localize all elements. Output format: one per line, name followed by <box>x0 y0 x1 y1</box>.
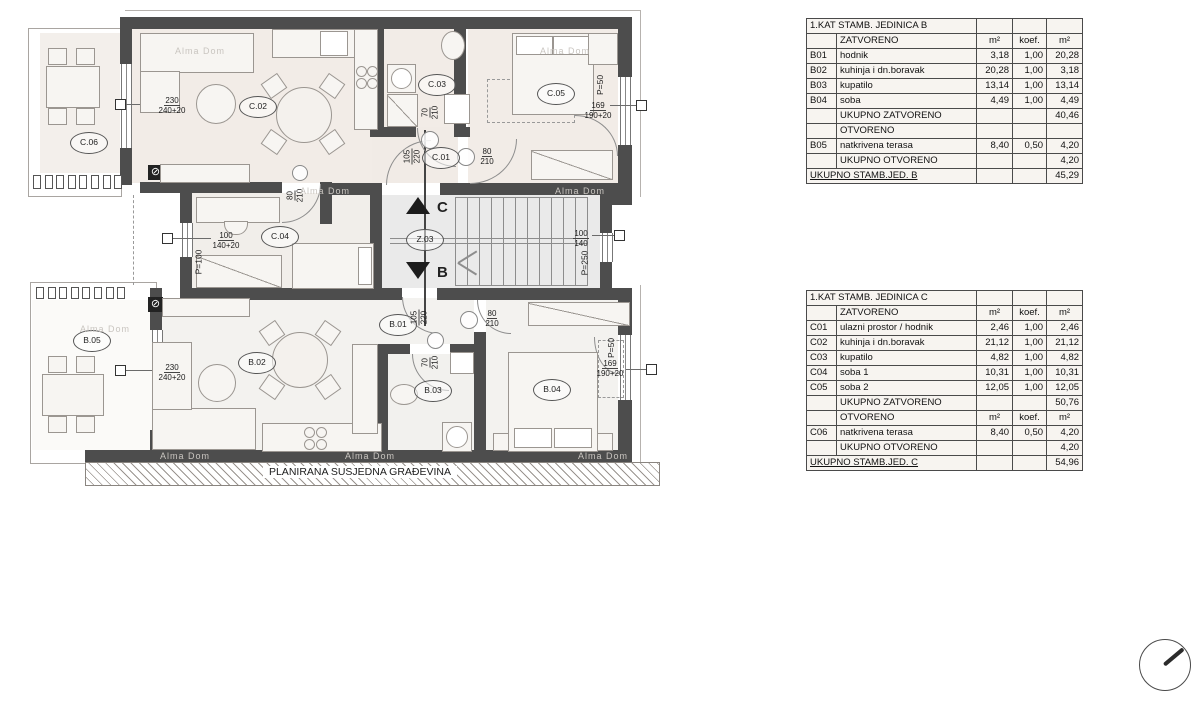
watermark: Alma Dom <box>160 451 210 461</box>
chair <box>76 48 95 65</box>
dim-marker <box>162 233 173 244</box>
chair <box>48 108 67 125</box>
table-cell: 21,12 <box>1047 336 1083 351</box>
table-cell: 21,12 <box>977 336 1013 351</box>
dim-top: 70 <box>421 357 431 368</box>
table-cell <box>977 109 1013 124</box>
stair-tread <box>539 197 540 286</box>
room-label-C.06: C.06 <box>70 132 108 154</box>
table-cell: m² <box>1047 306 1083 321</box>
table-cell <box>1013 456 1047 471</box>
table-cell: natkrivena terasa <box>837 139 977 154</box>
room-label-B.03: B.03 <box>414 380 452 402</box>
chair <box>76 108 95 125</box>
eaves-line <box>640 285 641 462</box>
table-cell <box>1013 154 1047 169</box>
table-row: C05soba 212,051,0012,05 <box>807 381 1083 396</box>
table-row: OTVORENOm²koef.m² <box>807 411 1083 426</box>
table-cell: 45,29 <box>1047 169 1083 184</box>
room-label-C.03: C.03 <box>418 74 456 96</box>
dim-bottom: 190+20 <box>581 111 615 120</box>
sofa <box>152 408 256 450</box>
dim-leader <box>626 369 646 370</box>
table-cell: 1,00 <box>1013 336 1047 351</box>
table-cell: 4,20 <box>1047 426 1083 441</box>
table-cell <box>807 441 837 456</box>
table-cell: soba 1 <box>837 366 977 381</box>
desk <box>196 197 280 223</box>
dim-label: 70210 <box>421 346 440 380</box>
dim-marker <box>115 99 126 110</box>
table-cell: C03 <box>807 351 837 366</box>
stove-burner <box>304 427 315 438</box>
table-cell: 1.KAT STAMB. JEDINICA B <box>807 19 977 34</box>
room-label-C.05: C.05 <box>537 83 575 105</box>
table-cell: 8,40 <box>977 426 1013 441</box>
stove-burner <box>356 66 367 77</box>
tv-sideboard <box>160 164 250 183</box>
table-cell: 1,00 <box>1013 381 1047 396</box>
parapet-post <box>33 175 41 189</box>
pillow <box>554 428 592 448</box>
table-cell <box>1013 396 1047 411</box>
table-cell: kupatilo <box>837 79 977 94</box>
table-cell <box>807 306 837 321</box>
dim-top: 80 <box>286 190 296 201</box>
watermark: Alma Dom <box>555 186 605 196</box>
table-cell: ZATVORENO <box>837 34 977 49</box>
tv-sideboard <box>162 298 250 317</box>
wall <box>454 127 470 137</box>
table-cell: soba <box>837 94 977 109</box>
table-cell: 4,20 <box>1047 441 1083 456</box>
floorplan-sheet: { "plan": { "watermark": "Alma Dom", "ne… <box>0 0 1200 709</box>
terrace-table <box>46 66 100 108</box>
parapet-post <box>117 287 125 299</box>
dim-bottom: 210 <box>431 346 440 380</box>
area-table-unit-b: 1.KAT STAMB. JEDINICA BZATVORENOm²koef.m… <box>806 18 1083 184</box>
parapet-post <box>103 175 111 189</box>
dim-top: 100 <box>573 229 588 239</box>
dim-label: 100140+20 <box>209 231 243 250</box>
terrace-table <box>42 374 104 416</box>
parapet-post <box>56 175 64 189</box>
parapet-post <box>91 175 99 189</box>
door-pivot-icon: ⊘ <box>148 297 163 312</box>
kitchen-sink <box>320 31 348 56</box>
chair <box>48 356 67 373</box>
table-row: B02kuhinja i dn.boravak20,281,003,18 <box>807 64 1083 79</box>
projection-dashed-line <box>133 195 134 285</box>
section-letter-B: B <box>437 264 448 281</box>
table-cell <box>807 396 837 411</box>
table-cell: UKUPNO ZATVORENO <box>837 396 977 411</box>
table-cell: m² <box>977 306 1013 321</box>
table-cell <box>807 411 837 426</box>
wardrobe <box>196 255 282 288</box>
wall <box>437 288 632 300</box>
stair-tread <box>467 197 468 286</box>
table-cell <box>807 154 837 169</box>
table-title-row: 1.KAT STAMB. JEDINICA B <box>807 19 1083 34</box>
wall <box>120 29 132 64</box>
watermark: Alma Dom <box>578 451 628 461</box>
dim-top: 169 <box>590 101 605 111</box>
table-title-row: 1.KAT STAMB. JEDINICA C <box>807 291 1083 306</box>
stove-burner <box>316 439 327 450</box>
table-row: C02kuhinja i dn.boravak21,121,0021,12 <box>807 336 1083 351</box>
parapet-post <box>59 287 67 299</box>
wall <box>120 17 632 29</box>
table-cell <box>1013 441 1047 456</box>
washing-machine-drum <box>446 426 468 448</box>
table-cell <box>1047 124 1083 139</box>
wall <box>140 182 282 193</box>
table-cell <box>1013 169 1047 184</box>
window <box>602 233 613 262</box>
parapet-height-label: P=100 <box>193 250 203 275</box>
wall <box>180 193 192 223</box>
table-cell: 4,49 <box>1047 94 1083 109</box>
room-label-C.04: C.04 <box>261 226 299 248</box>
dim-bottom: 210 <box>475 319 509 328</box>
table-cell: soba 2 <box>837 381 977 396</box>
table-cell: 10,31 <box>1047 366 1083 381</box>
table-cell <box>1013 109 1047 124</box>
table-cell: OTVORENO <box>837 124 977 139</box>
table-row: C01ulazni prostor / hodnik2,461,002,46 <box>807 321 1083 336</box>
dim-label: 105220 <box>410 301 429 335</box>
table-row: UKUPNO OTVORENO4,20 <box>807 441 1083 456</box>
dim-bottom: 240+20 <box>155 373 189 382</box>
wall <box>618 400 632 452</box>
table-cell: 0,50 <box>1013 426 1047 441</box>
table-cell: 8,40 <box>977 139 1013 154</box>
dim-marker <box>646 364 657 375</box>
toilet <box>441 31 465 60</box>
table-cell: 1,00 <box>1013 321 1047 336</box>
dim-bottom: 190+20 <box>593 369 627 378</box>
table-cell: m² <box>1047 34 1083 49</box>
dim-label: 70210 <box>421 96 440 130</box>
wall <box>600 262 612 288</box>
table-cell: UKUPNO ZATVORENO <box>837 109 977 124</box>
stove-burner <box>367 78 378 89</box>
table-cell: C01 <box>807 321 837 336</box>
wall <box>618 17 632 77</box>
room-label-B.02: B.02 <box>238 352 276 374</box>
table-total-row: UKUPNO STAMB.JED. C54,96 <box>807 456 1083 471</box>
room-label-C.01: C.01 <box>422 147 460 169</box>
table-cell: B02 <box>807 64 837 79</box>
section-letter-C: C <box>437 199 448 216</box>
table-cell: ZATVORENO <box>837 306 977 321</box>
table-row: C04soba 110,311,0010,31 <box>807 366 1083 381</box>
table-cell <box>807 124 837 139</box>
table-cell: hodnik <box>837 49 977 64</box>
table-row: B01hodnik3,181,0020,28 <box>807 49 1083 64</box>
wall <box>180 257 192 290</box>
dim-marker <box>115 365 126 376</box>
dim-bottom: 220 <box>420 301 429 335</box>
stairs <box>455 197 587 198</box>
table-cell: B01 <box>807 49 837 64</box>
watermark: Alma Dom <box>540 46 590 56</box>
dim-bottom: 210 <box>431 96 440 130</box>
table-cell <box>977 396 1013 411</box>
table-cell: 4,20 <box>1047 154 1083 169</box>
coffee-table <box>196 84 236 124</box>
table-cell: 2,46 <box>1047 321 1083 336</box>
dim-bottom: 140+20 <box>209 241 243 250</box>
table-cell: 10,31 <box>977 366 1013 381</box>
dining-table <box>276 87 332 143</box>
table-cell: kuhinja i dn.boravak <box>837 64 977 79</box>
dim-top: 70 <box>421 107 431 118</box>
table-cell: 3,18 <box>977 49 1013 64</box>
table-cell: C06 <box>807 426 837 441</box>
table-cell <box>807 34 837 49</box>
table-row: UKUPNO ZATVORENO50,76 <box>807 396 1083 411</box>
table-cell: UKUPNO STAMB.JED. B <box>807 169 977 184</box>
parapet-post <box>82 287 90 299</box>
watermark: Alma Dom <box>175 46 225 56</box>
dim-label: 100140 <box>564 229 598 248</box>
nightstand <box>493 433 509 451</box>
table-cell: kuhinja i dn.boravak <box>837 336 977 351</box>
stair-tread <box>503 197 504 286</box>
table-cell: 40,46 <box>1047 109 1083 124</box>
table-row: ZATVORENOm²koef.m² <box>807 306 1083 321</box>
wall <box>378 344 410 354</box>
dim-top: 105 <box>410 310 420 325</box>
table-cell: B04 <box>807 94 837 109</box>
table-cell <box>977 19 1013 34</box>
table-row: ZATVORENOm²koef.m² <box>807 34 1083 49</box>
dining-table <box>272 332 328 388</box>
neighbor-building-label: PLANIRANA SUSJEDNA GRAĐEVINA <box>263 466 457 478</box>
wall <box>600 205 612 233</box>
parapet-post <box>36 287 44 299</box>
chair <box>76 356 95 373</box>
table-cell: B05 <box>807 139 837 154</box>
dim-bottom: 140 <box>564 239 598 248</box>
dim-marker <box>636 100 647 111</box>
table-cell: 20,28 <box>1047 49 1083 64</box>
table-cell: kupatilo <box>837 351 977 366</box>
table-cell <box>807 109 837 124</box>
table-cell: 54,96 <box>1047 456 1083 471</box>
dim-label: 80210 <box>470 147 504 166</box>
table-cell: koef. <box>1013 411 1047 426</box>
coffee-table <box>198 364 236 402</box>
stove-burner <box>316 427 327 438</box>
table-cell: 1,00 <box>1013 49 1047 64</box>
table-cell <box>977 456 1013 471</box>
dim-top: 80 <box>482 147 493 157</box>
watermark: Alma Dom <box>80 324 130 334</box>
table-cell <box>977 291 1013 306</box>
washing-machine-drum <box>391 68 412 89</box>
table-cell: UKUPNO OTVORENO <box>837 154 977 169</box>
parapet-post <box>68 175 76 189</box>
dim-top: 105 <box>403 149 413 164</box>
eaves-line <box>125 10 640 11</box>
table-cell: 1,00 <box>1013 351 1047 366</box>
chair <box>48 48 67 65</box>
chair <box>76 416 95 433</box>
table-cell: 1,00 <box>1013 366 1047 381</box>
table-cell <box>1013 291 1047 306</box>
table-row: B03kupatilo13,141,0013,14 <box>807 79 1083 94</box>
table-cell: 12,05 <box>977 381 1013 396</box>
table-cell: 4,82 <box>1047 351 1083 366</box>
table-cell <box>1013 19 1047 34</box>
parapet-post <box>79 175 87 189</box>
stove-burner <box>367 66 378 77</box>
table-cell: 12,05 <box>1047 381 1083 396</box>
table-cell: 0,50 <box>1013 139 1047 154</box>
table-cell: UKUPNO STAMB.JED. C <box>807 456 977 471</box>
nightstand <box>597 433 613 451</box>
dim-top: 100 <box>218 231 233 241</box>
table-row: B05natkrivena terasa8,400,504,20 <box>807 139 1083 154</box>
wall <box>474 332 486 450</box>
table-cell: 50,76 <box>1047 396 1083 411</box>
table-cell: UKUPNO OTVORENO <box>837 441 977 456</box>
table-cell: koef. <box>1013 306 1047 321</box>
table-cell: B03 <box>807 79 837 94</box>
room-label-C.02: C.02 <box>239 96 277 118</box>
bathroom-sink <box>444 94 470 124</box>
table-cell <box>977 124 1013 139</box>
table-row: UKUPNO OTVORENO4,20 <box>807 154 1083 169</box>
table-cell: 13,14 <box>977 79 1013 94</box>
table-row: B04soba4,491,004,49 <box>807 94 1083 109</box>
table-cell: 4,82 <box>977 351 1013 366</box>
parapet-height-label: P=250 <box>579 251 589 276</box>
dim-label: 80210 <box>475 309 509 328</box>
table-cell: 1,00 <box>1013 94 1047 109</box>
table-cell: 1,00 <box>1013 64 1047 79</box>
table-cell: m² <box>977 34 1013 49</box>
table-cell: natkrivena terasa <box>837 426 977 441</box>
table-cell: 20,28 <box>977 64 1013 79</box>
table-cell: ulazni prostor / hodnik <box>837 321 977 336</box>
table-cell <box>1047 19 1083 34</box>
wardrobe <box>528 302 630 326</box>
dim-top: 169 <box>602 359 617 369</box>
parapet-post <box>45 175 53 189</box>
parapet-post <box>114 175 122 189</box>
table-cell <box>1047 291 1083 306</box>
stair-tread <box>551 197 552 286</box>
pillow <box>358 247 372 285</box>
cabinet <box>352 344 378 434</box>
parapet-height-label: P=50 <box>606 338 616 358</box>
parapet-height-label: P=50 <box>595 75 605 95</box>
table-row: UKUPNO ZATVORENO40,46 <box>807 109 1083 124</box>
stair-tread <box>455 197 456 286</box>
table-cell: 4,49 <box>977 94 1013 109</box>
window <box>182 223 193 257</box>
dim-marker <box>614 230 625 241</box>
table-cell: 1,00 <box>1013 79 1047 94</box>
dim-top: 80 <box>487 309 498 319</box>
table-cell: m² <box>1047 411 1083 426</box>
shower <box>387 94 418 127</box>
table-cell: C04 <box>807 366 837 381</box>
dim-bottom: 210 <box>470 157 504 166</box>
watermark: Alma Dom <box>300 186 350 196</box>
stair-tread <box>491 197 492 286</box>
parapet-post <box>94 287 102 299</box>
stair-tread <box>479 197 480 286</box>
area-table-unit-c: 1.KAT STAMB. JEDINICA CZATVORENOm²koef.m… <box>806 290 1083 471</box>
dim-label: 169190+20 <box>593 359 627 378</box>
room-label-Z.03: Z.03 <box>406 229 444 251</box>
room-label-B.04: B.04 <box>533 379 571 401</box>
stair-tread <box>527 197 528 286</box>
dim-label: 230240+20 <box>155 363 189 382</box>
dim-top: 230 <box>164 96 179 106</box>
bathroom-sink <box>450 352 474 374</box>
table-row: C03kupatilo4,821,004,82 <box>807 351 1083 366</box>
stair-tread <box>515 197 516 286</box>
stairs <box>455 285 587 286</box>
table-cell: C02 <box>807 336 837 351</box>
dim-top: 230 <box>164 363 179 373</box>
table-cell: m² <box>977 411 1013 426</box>
section-arrow-up <box>406 197 430 214</box>
table-cell <box>977 441 1013 456</box>
dim-bottom: 240+20 <box>155 106 189 115</box>
dim-label: 169190+20 <box>581 101 615 120</box>
wall <box>600 195 632 205</box>
table-cell: koef. <box>1013 34 1047 49</box>
table-cell <box>1013 124 1047 139</box>
parapet-post <box>48 287 56 299</box>
table-cell: 3,18 <box>1047 64 1083 79</box>
section-arrow-down <box>406 262 430 279</box>
stove-burner <box>356 78 367 89</box>
table-cell: 2,46 <box>977 321 1013 336</box>
table-cell: OTVORENO <box>837 411 977 426</box>
window <box>620 77 631 145</box>
dim-leader <box>173 238 211 239</box>
chair <box>48 416 67 433</box>
dim-label: 230240+20 <box>155 96 189 115</box>
wardrobe <box>531 150 613 180</box>
table-cell: 13,14 <box>1047 79 1083 94</box>
floor-plan: ⊘ ⊘ <box>0 0 700 500</box>
parapet-post <box>71 287 79 299</box>
table-cell: 1.KAT STAMB. JEDINICA C <box>807 291 977 306</box>
dim-bottom: 220 <box>413 140 422 174</box>
watermark: Alma Dom <box>345 451 395 461</box>
table-cell <box>977 154 1013 169</box>
dim-label: 105220 <box>403 140 422 174</box>
stove-burner <box>304 439 315 450</box>
table-cell: 4,20 <box>1047 139 1083 154</box>
table-total-row: UKUPNO STAMB.JED. B45,29 <box>807 169 1083 184</box>
closet <box>588 33 618 65</box>
table-row: OTVORENO <box>807 124 1083 139</box>
table-row: C06natkrivena terasa8,400,504,20 <box>807 426 1083 441</box>
table-cell <box>977 169 1013 184</box>
parapet-post <box>106 287 114 299</box>
pillow <box>514 428 552 448</box>
